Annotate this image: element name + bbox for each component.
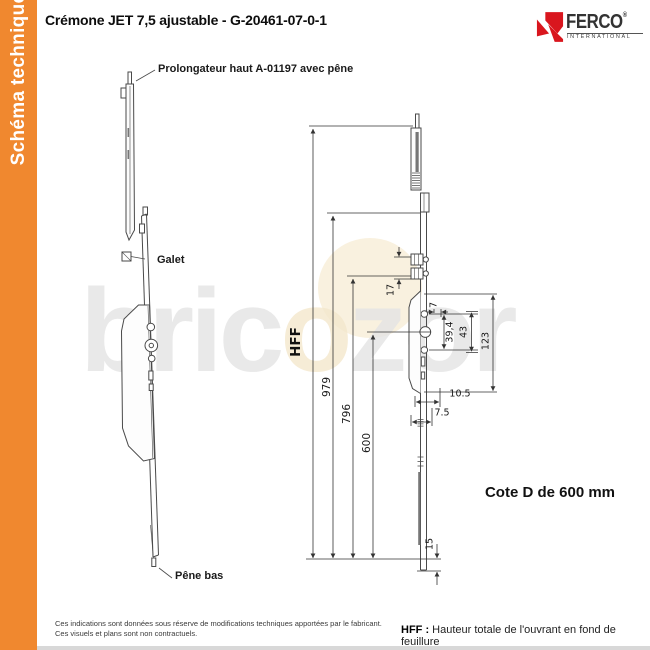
dim-hff-label: HFF xyxy=(288,327,304,357)
hff-term: HFF : xyxy=(401,624,429,636)
pene-bas-label: Pêne bas xyxy=(175,570,223,582)
hff-definition: HFF : Hauteur totale de l'ouvrant en fon… xyxy=(401,624,650,648)
galet-label: Galet xyxy=(157,254,185,266)
dim-17-label: 17 xyxy=(386,284,397,296)
dimension-lines xyxy=(306,126,497,585)
right-assembly xyxy=(409,114,431,570)
dim-7-label: 7 xyxy=(429,302,440,308)
left-assembly xyxy=(121,70,172,578)
dim-600-label: 600 xyxy=(361,433,373,453)
dim-979-label: 979 xyxy=(321,377,333,397)
dim-39-4-label: 39,4 xyxy=(445,321,456,342)
dim-43-label: 43 xyxy=(459,326,470,338)
dim-796-label: 796 xyxy=(341,404,353,424)
hff-def-text: Hauteur totale de l'ouvrant en fond de f… xyxy=(401,624,616,648)
schematic-page: { "sidebar": { "label": "Schéma techniqu… xyxy=(0,0,650,650)
dim-123-label: 123 xyxy=(481,332,492,350)
technical-drawing xyxy=(0,0,650,650)
disclaimer: Ces indications sont données sous réserv… xyxy=(55,619,382,639)
dim-10-5-label: 10.5 xyxy=(449,389,470,400)
disclaimer-line2: Ces visuels et plans sont non contractue… xyxy=(55,629,382,639)
dim-15-label: 15 xyxy=(425,538,436,550)
bottom-strip xyxy=(37,646,650,650)
cote-d-label: Cote D de 600 mm xyxy=(470,484,630,501)
prolongateur-label: Prolongateur haut A-01197 avec pêne xyxy=(158,63,353,75)
disclaimer-line1: Ces indications sont données sous réserv… xyxy=(55,619,382,629)
dim-7-5-label: 7.5 xyxy=(434,408,449,419)
